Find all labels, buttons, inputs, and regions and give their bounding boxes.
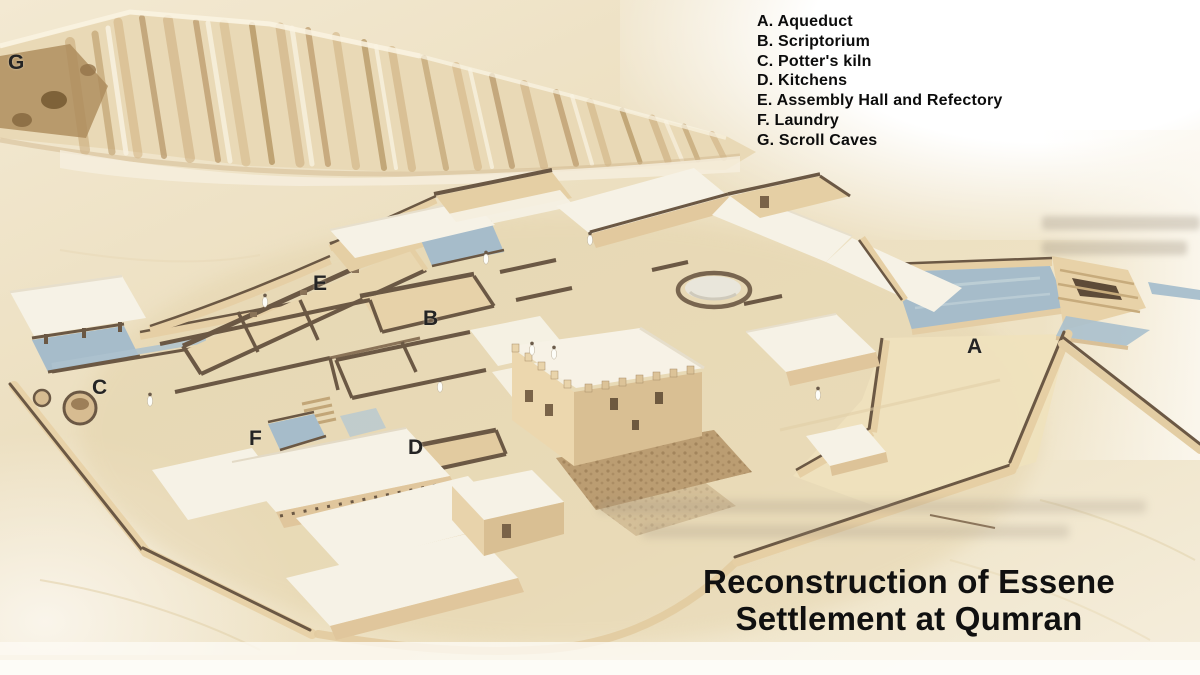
legend: A. AqueductB. ScriptoriumC. Potter's kil… (757, 12, 1003, 151)
legend-list: A. AqueductB. ScriptoriumC. Potter's kil… (757, 12, 1003, 151)
legend-item-g: G. Scroll Caves (757, 131, 1003, 151)
qumran-reconstruction-page: A. AqueductB. ScriptoriumC. Potter's kil… (0, 0, 1200, 675)
legend-item-c: C. Potter's kiln (757, 52, 1003, 72)
legend-item-b: B. Scriptorium (757, 32, 1003, 52)
legend-item-f: F. Laundry (757, 111, 1003, 131)
legend-item-e: E. Assembly Hall and Refectory (757, 91, 1003, 111)
page-title: Reconstruction of Essene Settlement at Q… (649, 563, 1169, 637)
legend-item-d: D. Kitchens (757, 71, 1003, 91)
cliffs (0, 12, 756, 186)
title-line-2: Settlement at Qumran (649, 600, 1169, 637)
legend-item-a: A. Aqueduct (757, 12, 1003, 32)
title-line-1: Reconstruction of Essene (649, 563, 1169, 600)
